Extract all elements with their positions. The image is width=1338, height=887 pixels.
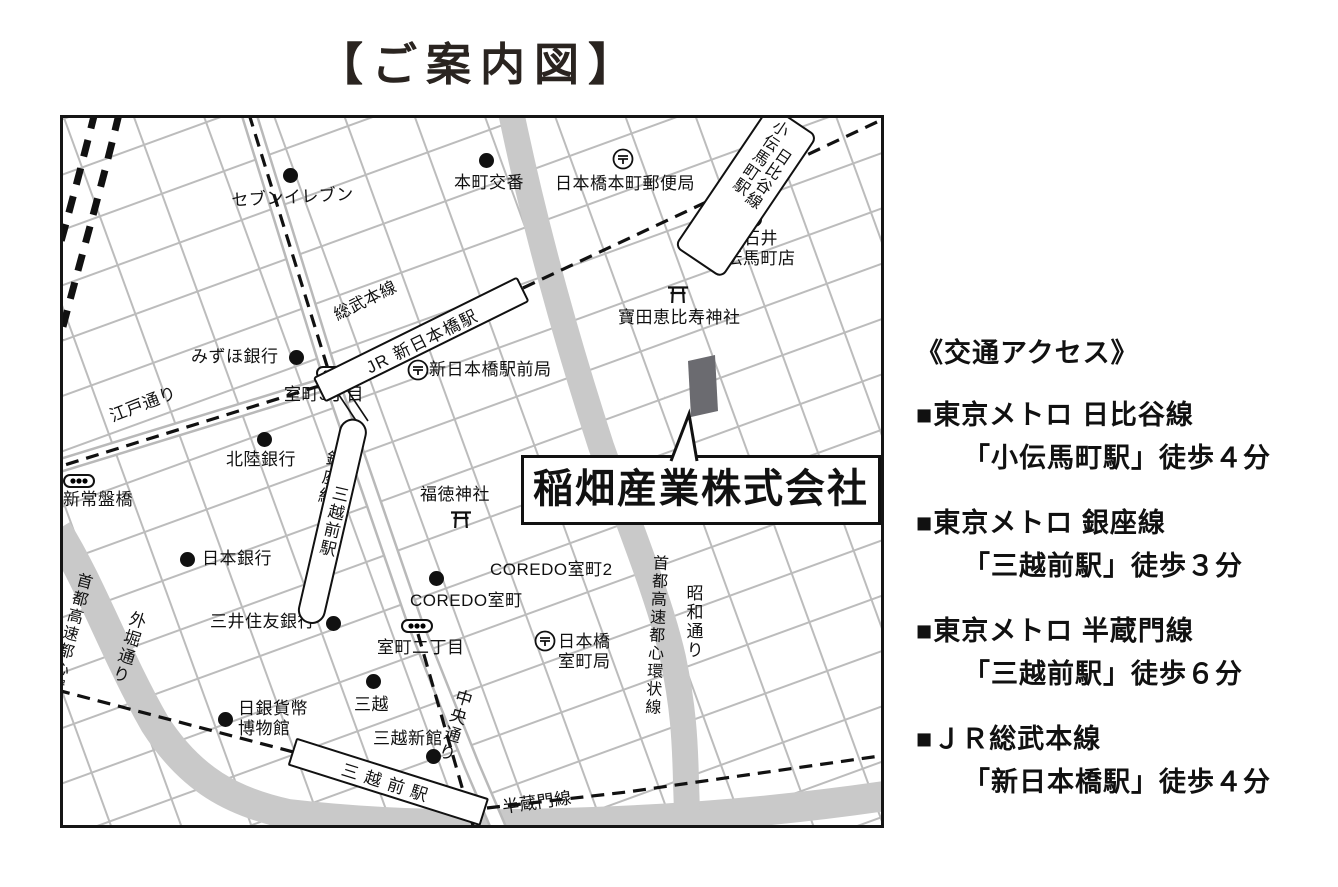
bank-of-japan-dot [180, 552, 195, 567]
label-hokuriku-bank: 北陸銀行 [226, 450, 296, 470]
label-showa-dori: 昭和通り [683, 584, 703, 660]
traffic-signal-icon [63, 474, 95, 488]
nichigin-museum-dot [218, 712, 233, 727]
mizuho-bank-dot [289, 350, 304, 365]
map-canvas: セブンイレブン 本町交番 日本橋本町郵便局 成城石井 小伝馬町店 寶田恵比寿神社… [60, 115, 884, 828]
torii-shrine-icon [449, 509, 473, 529]
company-callout: 稲畑産業株式会社 [521, 455, 881, 525]
label-mitsukoshi: 三越 [354, 695, 389, 715]
post-office-icon [612, 148, 634, 170]
access-line-name: 東京メトロ 銀座線 [933, 506, 1166, 540]
access-heading: 《交通アクセス》 [916, 331, 1336, 370]
label-coredo-muromachi: COREDO室町 [410, 591, 523, 611]
traffic-signal-icon [401, 619, 433, 633]
access-panel: 《交通アクセス》 ■ 東京メトロ 日比谷線 「小伝馬町駅」徒歩４分 ■ 東京メト… [916, 331, 1336, 830]
hokuriku-bank-dot [257, 432, 272, 447]
bullet-square-icon: ■ [916, 614, 933, 648]
torii-shrine-icon [666, 284, 690, 304]
guide-map-page: 【ご案内図】 [0, 0, 1338, 887]
label-shin-tokiwabashi: 新常盤橋 [63, 490, 133, 510]
label-mitsukoshi-annex: 三越新館 [373, 729, 443, 749]
access-line-name: ＪＲ総武本線 [933, 722, 1101, 756]
label-honcho-post-office: 日本橋本町郵便局 [555, 174, 695, 194]
bullet-square-icon: ■ [916, 398, 933, 432]
page-title: 【ご案内図】 [318, 28, 642, 93]
post-office-icon [407, 359, 429, 381]
access-item-hanzomon: ■ 東京メトロ 半蔵門線 「三越前駅」徒歩６分 [916, 614, 1336, 691]
access-item-jr-sobu: ■ ＪＲ総武本線 「新日本橋駅」徒歩４分 [916, 722, 1336, 799]
post-office-icon [534, 630, 556, 652]
label-fukutoku-shrine: 福徳神社 [420, 485, 490, 505]
seven-eleven-dot [283, 168, 298, 183]
company-callout-pointer [661, 398, 721, 462]
label-bank-of-japan: 日本銀行 [202, 549, 272, 569]
label-muromachi-2chome: 室町二丁目 [377, 638, 465, 658]
bullet-square-icon: ■ [916, 506, 933, 540]
access-item-hibiya: ■ 東京メトロ 日比谷線 「小伝馬町駅」徒歩４分 [916, 398, 1336, 475]
label-nichigin-museum: 日銀貨幣 博物館 [238, 699, 308, 738]
label-takarada-ebisu-shrine: 寶田恵比寿神社 [618, 308, 741, 328]
label-coredo-muromachi-2: COREDO室町2 [490, 560, 613, 580]
access-line-name: 東京メトロ 半蔵門線 [933, 614, 1194, 648]
label-honcho-koban: 本町交番 [454, 173, 524, 193]
smbc-bank-dot [326, 616, 341, 631]
honcho-koban-dot [479, 153, 494, 168]
coredo-muromachi-dot [429, 571, 444, 586]
bullet-square-icon: ■ [916, 722, 933, 756]
label-mizuho-bank: みずほ銀行 [191, 347, 279, 367]
access-line-name: 東京メトロ 日比谷線 [933, 398, 1194, 432]
access-item-ginza: ■ 東京メトロ 銀座線 「三越前駅」徒歩３分 [916, 506, 1336, 583]
access-walk-info: 「小伝馬町駅」徒歩４分 [916, 441, 1336, 475]
label-shin-nihombashi-post-office: 新日本橋駅前局 [429, 360, 552, 380]
access-walk-info: 「三越前駅」徒歩６分 [916, 657, 1336, 691]
access-walk-info: 「新日本橋駅」徒歩４分 [916, 765, 1336, 799]
mitsukoshi-dot [366, 674, 381, 689]
access-walk-info: 「三越前駅」徒歩３分 [916, 549, 1336, 583]
label-nihombashi-muromachi-post-office: 日本橋 室町局 [558, 632, 611, 671]
